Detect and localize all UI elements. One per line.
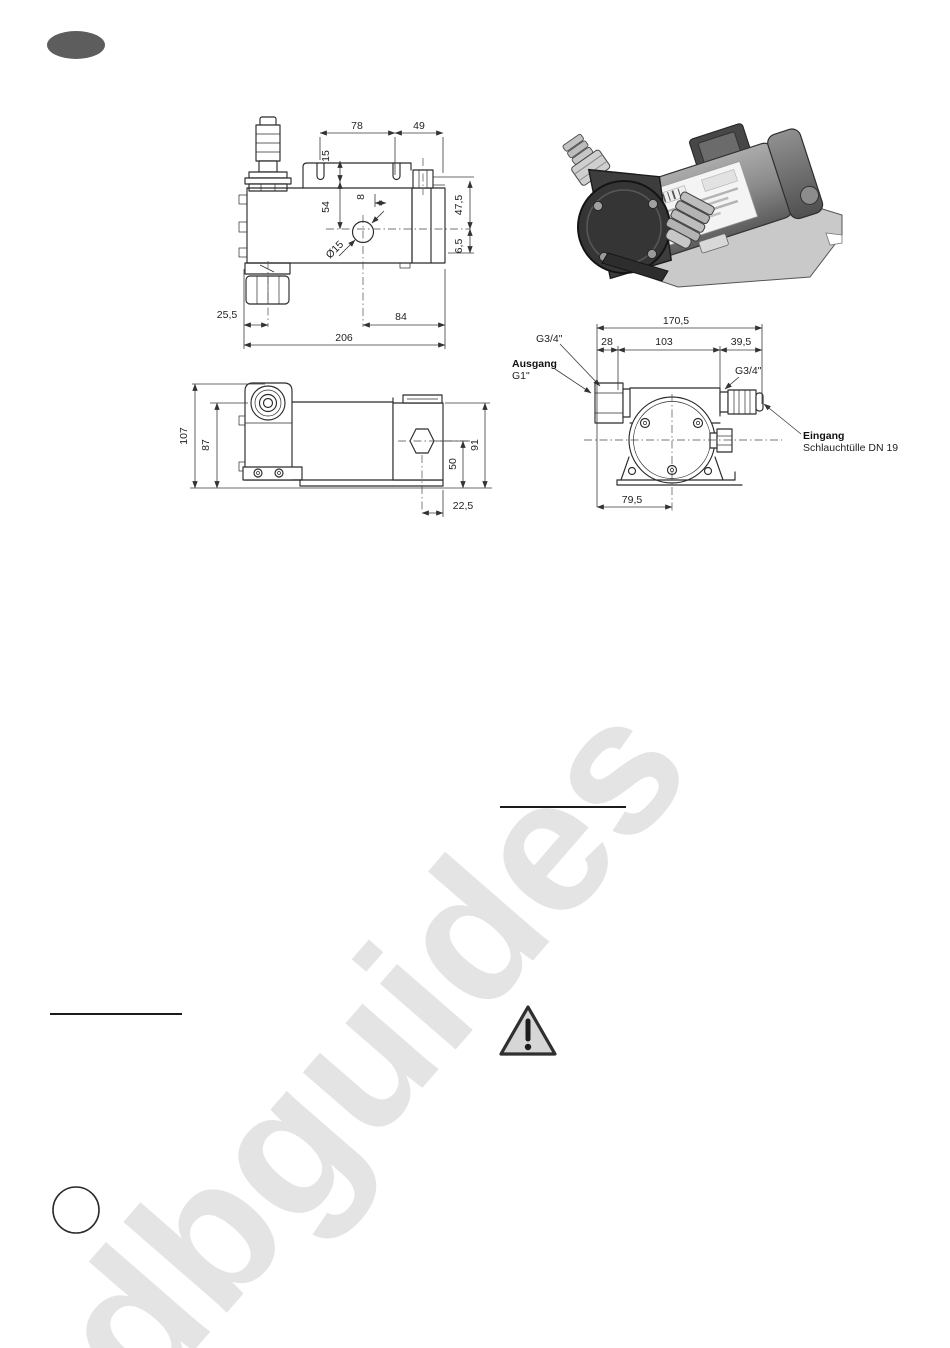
dim-84: 84 xyxy=(395,311,407,323)
dim-hole-dia: Ø15 xyxy=(324,239,347,262)
pump-side-outline xyxy=(239,383,443,486)
dim-8: 8 xyxy=(355,194,367,200)
label-g34-left: G3/4" xyxy=(536,333,563,345)
label-ausgang: Ausgang xyxy=(512,358,557,370)
warning-icon xyxy=(498,1003,558,1058)
side-view-drawing: 107 87 91 50 22,5 xyxy=(170,370,505,530)
dim-49: 49 xyxy=(413,120,425,132)
label-schlauchtuelle: Schlauchtülle DN 19 xyxy=(803,442,898,454)
dim-91: 91 xyxy=(469,439,481,451)
header-pill xyxy=(47,31,105,59)
dim-78: 78 xyxy=(351,120,363,132)
dimension-lines xyxy=(190,384,492,517)
dim-87: 87 xyxy=(200,439,212,451)
dim-22-5: 22,5 xyxy=(453,500,474,512)
dim-50: 50 xyxy=(447,458,459,470)
dim-206: 206 xyxy=(335,332,353,344)
divider-line-lower xyxy=(50,1013,182,1015)
label-g34-right: G3/4" xyxy=(735,365,762,377)
divider-line-upper xyxy=(500,806,626,808)
label-g1: G1" xyxy=(512,370,530,382)
dim-25-5: 25,5 xyxy=(217,309,238,321)
dim-47-5: 47,5 xyxy=(453,195,465,216)
front-view-drawing: 170,5 28 103 39,5 79,5 G3/4" Ausgang G1"… xyxy=(492,312,916,534)
dim-103: 103 xyxy=(655,336,673,348)
hose-barb-fitting xyxy=(245,117,291,191)
document-page: adbguides xyxy=(0,0,950,1348)
dim-54: 54 xyxy=(320,201,332,213)
label-eingang: Eingang xyxy=(803,430,844,442)
dim-6-5: 6,5 xyxy=(453,239,465,254)
dim-107: 107 xyxy=(178,427,190,445)
dim-28: 28 xyxy=(601,336,613,348)
pump-head xyxy=(578,164,672,281)
dim-170-5: 170,5 xyxy=(663,315,689,327)
pump-photo-illustration xyxy=(558,105,850,293)
top-view-drawing: 78 49 15 54 8 47,5 6,5 25,5 84 206 Ø15 xyxy=(208,103,482,365)
dim-15: 15 xyxy=(320,150,332,162)
watermark-text: adbguides xyxy=(0,668,719,1348)
dim-79-5: 79,5 xyxy=(622,494,643,506)
dim-39-5: 39,5 xyxy=(731,336,752,348)
empty-circle-marker xyxy=(50,1184,102,1236)
pump-front-outline xyxy=(595,383,763,485)
